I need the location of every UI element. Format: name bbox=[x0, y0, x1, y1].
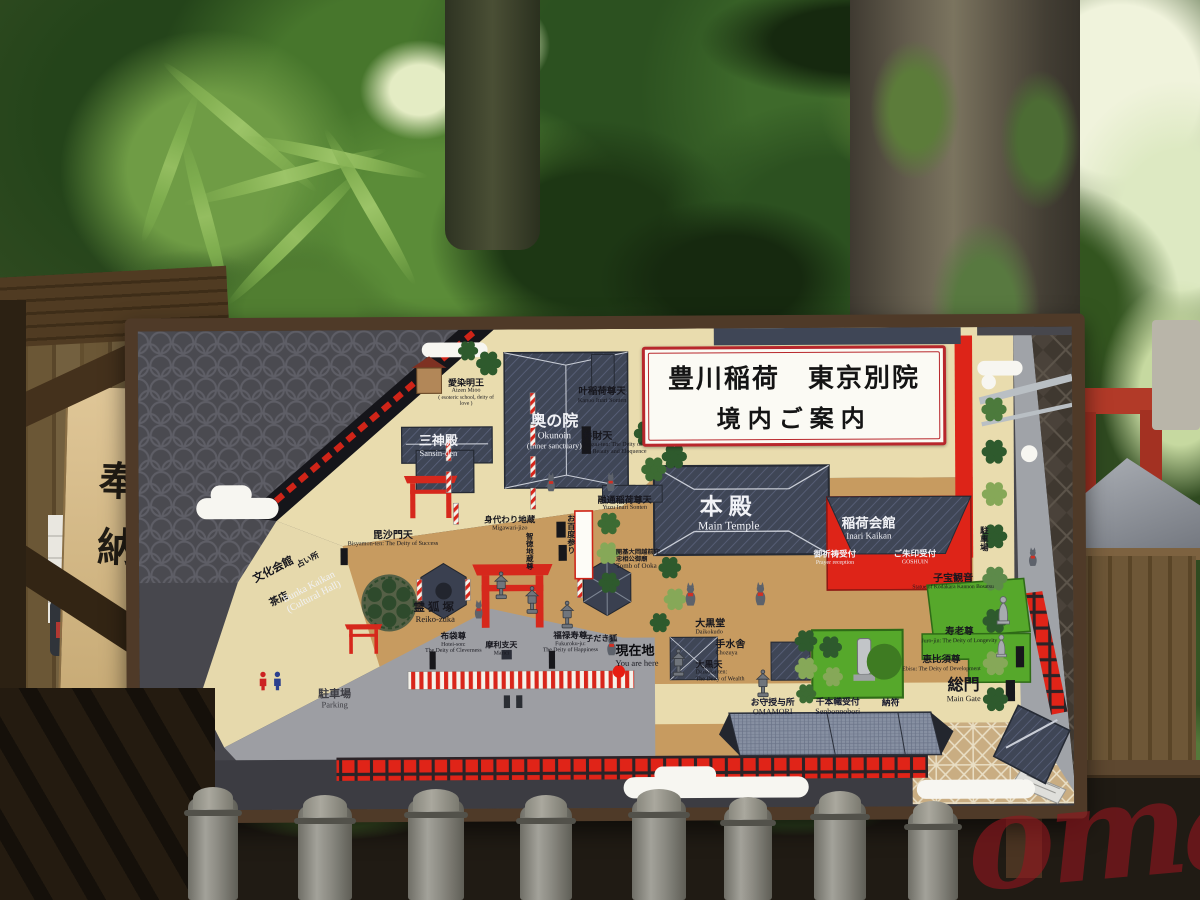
stone-post bbox=[408, 800, 464, 900]
map-signboard: 豊川稲荷 東京別院 境内ご案内 愛染明王 Aizen Mioo ( esoter… bbox=[125, 313, 1088, 823]
map-area: 豊川稲荷 東京別院 境内ご案内 愛染明王 Aizen Mioo ( esoter… bbox=[138, 327, 1074, 811]
label-daikokudo: 大黒堂 Daikokudo bbox=[695, 618, 745, 636]
label-sansinden: 三神殿 Sansin-den bbox=[400, 434, 476, 458]
label-bisyamon: 毘沙門天 Bisyamon-ten: The Deity of Success bbox=[327, 530, 459, 549]
ohyakudo-banner bbox=[575, 511, 593, 579]
label-jurojin: 寿老尊 Juro-jin: The Deity of Longevity bbox=[917, 627, 1001, 645]
stone-lantern-right bbox=[1152, 320, 1200, 430]
label-kanoo: 叶稲荷尊天 Kanoo Inari Sonten bbox=[564, 387, 640, 405]
label-omamori: お守授与所 OMAMORI bbox=[740, 698, 806, 717]
label-yuzu: 融通稲荷尊天 Yuzu Inari Sonten bbox=[583, 495, 667, 512]
top-roof-edge bbox=[714, 327, 961, 345]
label-you-are-here: 現在地 You are here bbox=[615, 644, 685, 668]
stone-post bbox=[908, 812, 958, 900]
label-migawari: 身代わり地蔵 Migawari-jizo bbox=[475, 515, 545, 532]
striped-fence bbox=[408, 670, 634, 689]
red-fence-bottom bbox=[336, 755, 928, 781]
label-parking-west: 駐車場 Parking bbox=[298, 688, 372, 710]
label-nofu: 納符 bbox=[876, 698, 906, 708]
label-ebisu: 恵比須尊 Ebisu: The Deity of Development bbox=[901, 655, 981, 673]
stone-post bbox=[188, 798, 238, 900]
stone-post bbox=[632, 800, 686, 900]
label-parking-east: 駐車場 bbox=[979, 511, 989, 567]
label-chitoku: 智徳地蔵尊 bbox=[525, 529, 534, 573]
trunk-moss bbox=[870, 40, 960, 180]
label-hotei: 布袋尊 Hotei-son: The Deity of Cleverness bbox=[423, 632, 483, 655]
stone-post bbox=[298, 806, 352, 900]
trunk-moss bbox=[1000, 70, 1080, 210]
label-goshuin: ご朱印受付 GOSHUIN bbox=[885, 549, 945, 565]
label-ooka-tomb: 開基大岡越前守 忠相公御廟 Tomb of Ooka bbox=[616, 549, 686, 571]
map-title-line1: 豊川稲荷 東京別院 bbox=[668, 357, 920, 395]
map-title-line2: 境内ご案内 bbox=[717, 399, 872, 435]
label-main-gate: 総門 Main Gate bbox=[938, 677, 990, 704]
label-chozuya: 手水舎 Chozuya bbox=[715, 639, 765, 657]
map-title-box: 豊川稲荷 東京別院 境内ご案内 bbox=[642, 345, 947, 447]
shrine-wall bbox=[1072, 556, 1196, 776]
label-prayer-reception: 御祈祷受付 Prayer reception bbox=[805, 550, 865, 566]
label-aizen: 愛染明王 Aizen Mioo ( esoteric school, deity… bbox=[436, 378, 496, 407]
stone-post bbox=[814, 802, 866, 900]
kanoo-building bbox=[592, 354, 615, 390]
omamori-building bbox=[719, 712, 954, 756]
label-ohyakudo: お百度参り bbox=[566, 505, 575, 563]
stone-post bbox=[724, 808, 772, 900]
label-reikozuka: 霊狐塚 Reiko-zuka bbox=[395, 602, 475, 625]
label-kodakara: 子宝観音 Statue of Kodakara Kannon Bosatsu bbox=[909, 573, 997, 591]
label-marici: 摩利支天 Marici bbox=[481, 641, 521, 657]
wooden-stairs bbox=[0, 688, 215, 900]
stone-post bbox=[520, 806, 572, 900]
label-inari-kaikan: 稲荷会館 Inari Kaikan bbox=[827, 515, 911, 541]
tree-trunk-center bbox=[445, 0, 540, 250]
label-honden: 本殿 Main Temple bbox=[675, 494, 783, 533]
photo-scene: 奉納 bbox=[0, 0, 1200, 900]
label-senbonnobori: 千本幟受付 Senbonnobori bbox=[806, 698, 870, 717]
label-daikokuten: 大黒天 Daikoku-ten: The Deity of Wealth bbox=[695, 659, 765, 683]
